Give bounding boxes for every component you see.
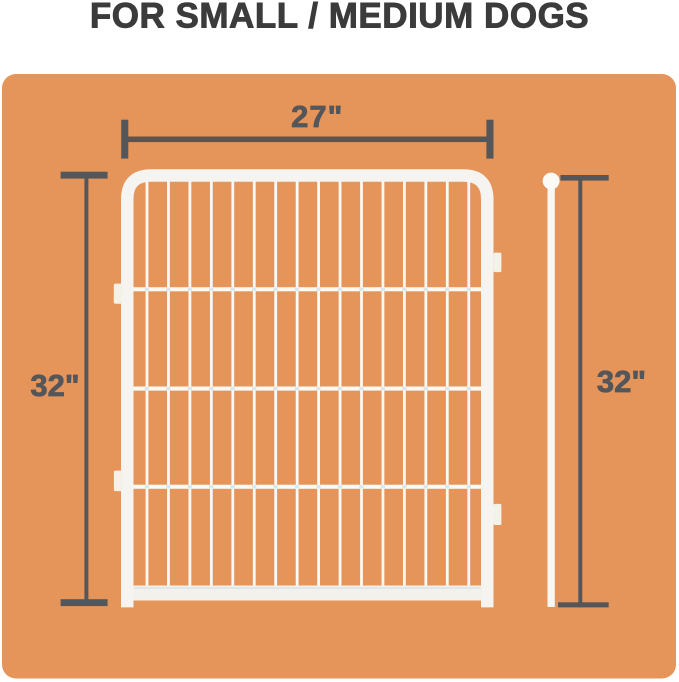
svg-text:32": 32" [30, 368, 79, 403]
svg-text:27": 27" [291, 99, 343, 134]
svg-text:FOR SMALL / MEDIUM DOGS: FOR SMALL / MEDIUM DOGS [90, 0, 589, 36]
svg-text:32": 32" [597, 364, 646, 399]
